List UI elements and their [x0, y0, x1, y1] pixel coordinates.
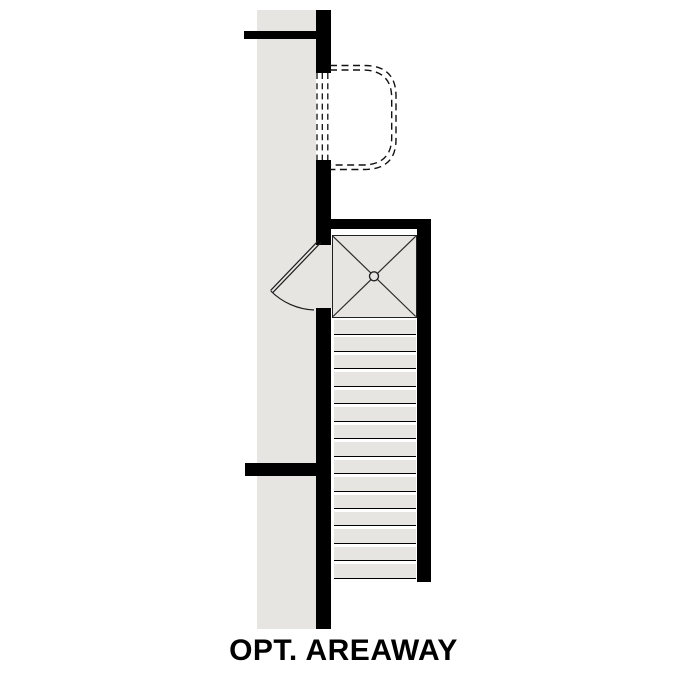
vertical-wall-middle [316, 160, 331, 245]
stair-tread [334, 407, 416, 424]
stair-run [334, 320, 416, 582]
stair-tread-face [334, 547, 416, 562]
stair-tread [334, 529, 416, 546]
vertical-wall-upper [316, 10, 331, 73]
stair-tread [334, 495, 416, 512]
floor-plan-canvas: OPT. AREAWAY [0, 0, 687, 687]
plan-title: OPT. AREAWAY [0, 634, 687, 668]
stair-tread [334, 477, 416, 494]
stair-tread [334, 460, 416, 477]
stair-tread-face [334, 477, 416, 492]
stair-landing [332, 235, 417, 318]
middle-partition-wall [245, 463, 331, 476]
window-dash-lines [317, 73, 328, 160]
stair-tread-face [334, 564, 416, 579]
stair-tread [334, 425, 416, 442]
left-wall-band [257, 10, 316, 629]
stair-tread-face [334, 320, 416, 335]
areaway-outline-outer-dashes [330, 66, 396, 170]
stair-tread [334, 547, 416, 564]
stair-tread-face [334, 425, 416, 440]
stair-tread-face [334, 529, 416, 544]
door-opening-floor [316, 245, 332, 308]
stairwell-right-wall [417, 219, 431, 582]
stair-tread-face [334, 337, 416, 352]
stair-tread-face [334, 390, 416, 405]
stair-tread-face [334, 512, 416, 527]
stair-tread [334, 320, 416, 337]
stair-tread-face [334, 372, 416, 387]
stair-tread [334, 442, 416, 459]
areaway-outline-inner-dashes [330, 70, 392, 165]
stair-tread-face [334, 407, 416, 422]
stair-tread [334, 390, 416, 407]
stair-tread [334, 512, 416, 529]
stair-tread-face [334, 442, 416, 457]
stair-tread [334, 564, 416, 581]
stair-tread [334, 355, 416, 372]
stair-tread-face [334, 355, 416, 370]
stairwell-top-wall [331, 219, 431, 229]
stair-tread [334, 337, 416, 354]
top-partition-wall [244, 31, 331, 39]
stair-tread [334, 372, 416, 389]
stair-tread-face [334, 495, 416, 510]
stair-tread-face [334, 460, 416, 475]
